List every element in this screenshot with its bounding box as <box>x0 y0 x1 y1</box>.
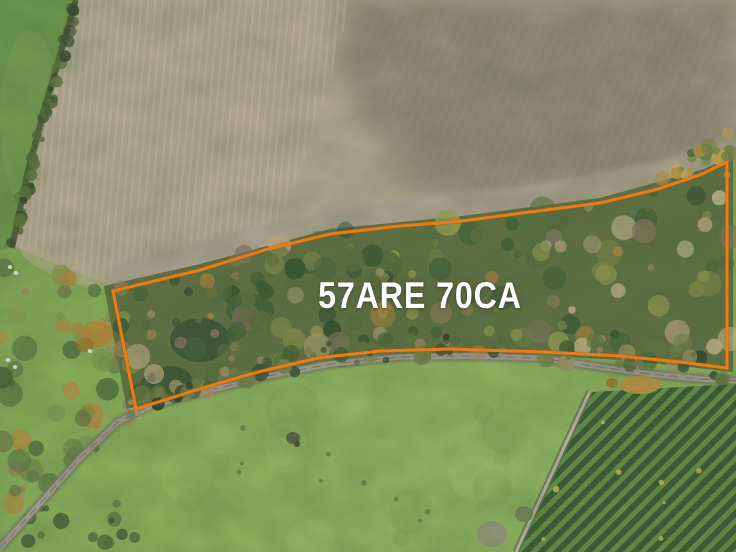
aerial-parcel-photo: 57ARE 70CA <box>0 0 736 552</box>
parcel-area-label: 57ARE 70CA <box>318 275 522 317</box>
